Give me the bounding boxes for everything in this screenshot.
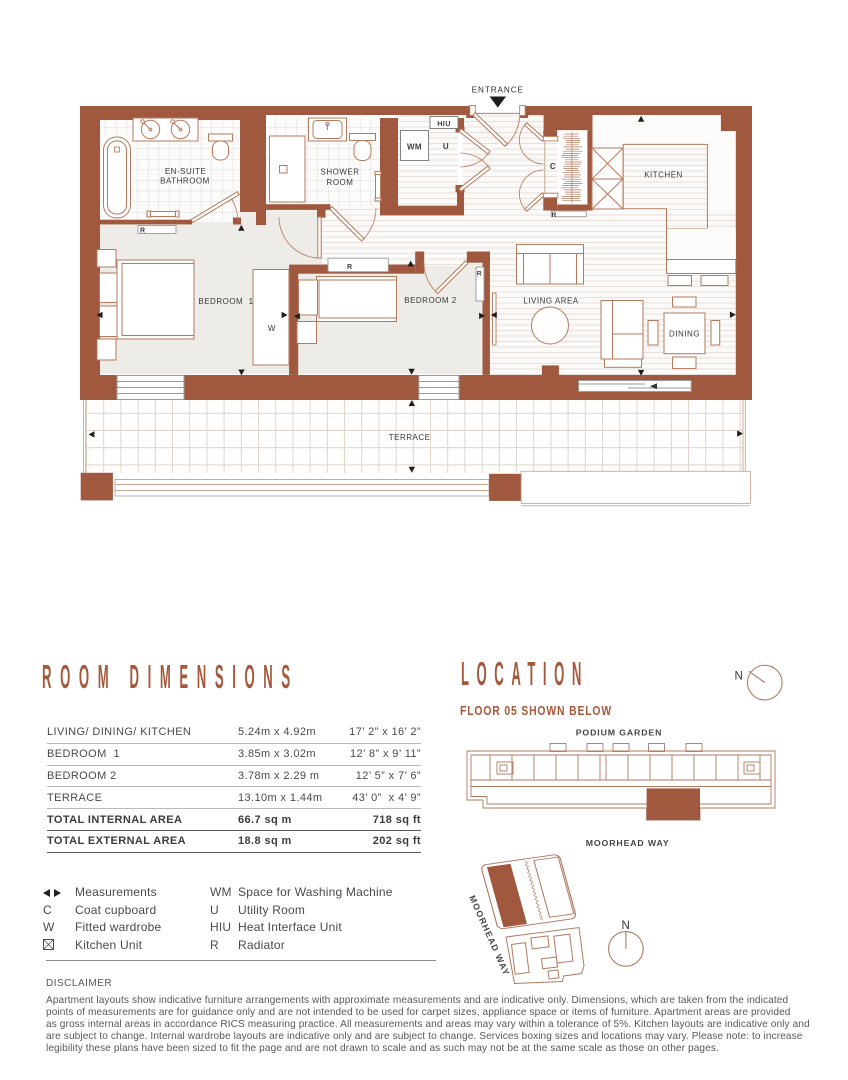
svg-text:R: R [347,264,352,271]
svg-text:ROOM: ROOM [327,178,354,187]
svg-text:BEDROOM 2: BEDROOM 2 [404,296,457,305]
svg-text:R: R [140,227,145,234]
svg-text:U: U [443,142,449,151]
svg-text:PODIUM GARDEN: PODIUM GARDEN [576,728,663,738]
svg-text:TERRACE: TERRACE [389,433,431,442]
svg-text:ENTRANCE: ENTRANCE [472,86,524,95]
svg-text:EN-SUITE: EN-SUITE [165,167,206,176]
svg-text:SHOWER: SHOWER [321,168,360,177]
svg-text:WM: WM [407,142,422,151]
svg-text:N: N [735,671,743,683]
svg-text:KITCHEN: KITCHEN [644,171,683,180]
svg-text:R: R [477,271,482,278]
svg-text:MOORHEAD WAY: MOORHEAD WAY [586,838,670,848]
svg-text:W: W [268,324,276,333]
svg-text:N: N [622,920,630,932]
svg-text:C: C [550,162,556,171]
svg-text:BEDROOM 1: BEDROOM 1 [198,297,253,306]
svg-text:BATHROOM: BATHROOM [160,177,210,186]
svg-text:HIU: HIU [437,119,451,128]
svg-text:R: R [552,212,557,219]
svg-text:DINING: DINING [669,330,700,339]
svg-text:LIVING AREA: LIVING AREA [523,297,578,306]
